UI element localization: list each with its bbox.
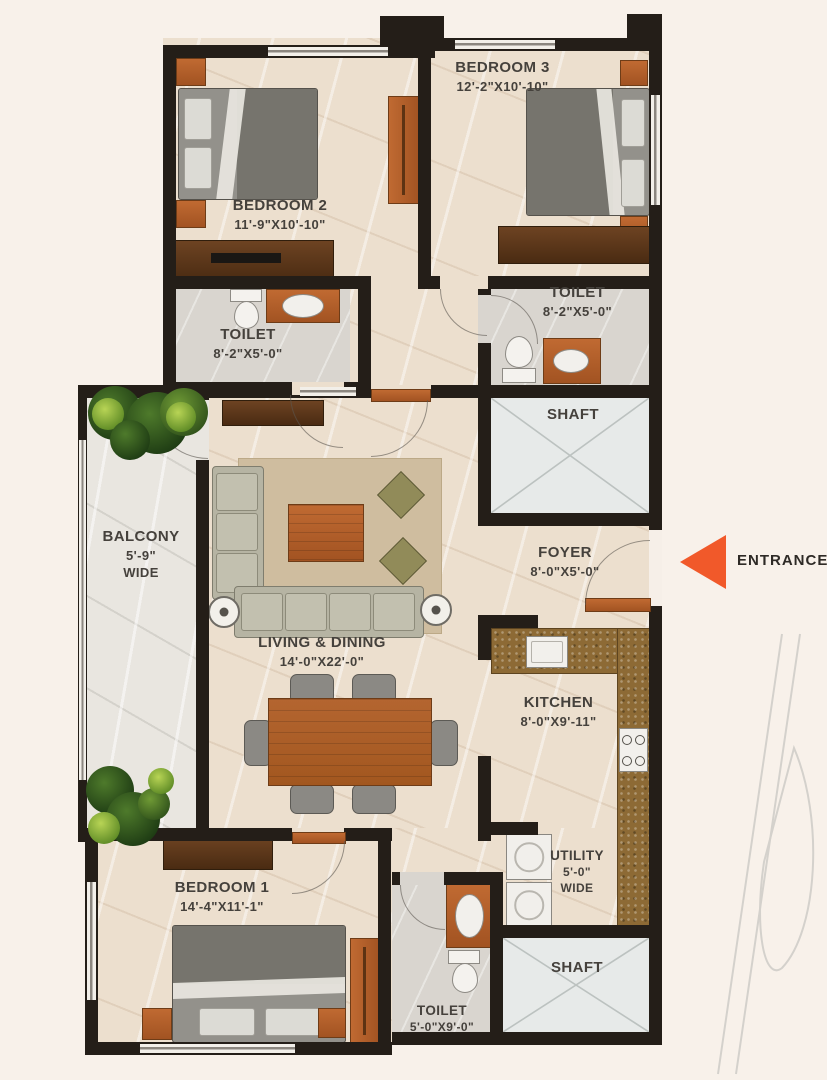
nightstand xyxy=(176,58,206,86)
entrance-opening xyxy=(649,530,662,606)
wall xyxy=(378,828,391,1045)
wall xyxy=(431,385,491,398)
bedroom3-label: BEDROOM 3 12'-2"X10'-10" xyxy=(415,58,590,95)
tv xyxy=(211,253,281,263)
wardrobe-handle xyxy=(363,947,366,1035)
plant xyxy=(110,420,150,460)
coffee-table xyxy=(288,504,364,562)
bed-blanket xyxy=(173,926,345,984)
kitchen-sink xyxy=(526,636,568,668)
dresser-bedroom1 xyxy=(163,836,273,870)
bedroom2-label: BEDROOM 2 11'-9"X10'-10" xyxy=(190,196,370,233)
toilet2-label: TOILET 8'-2"X5'-0" xyxy=(173,325,323,362)
sofa-left xyxy=(212,466,264,600)
toilet3-washbasin xyxy=(553,349,589,373)
toilet1-washbasin xyxy=(455,894,484,938)
kitchen-label: KITCHEN 8'-0"X9'-11" xyxy=(496,693,621,730)
plant xyxy=(88,812,120,844)
sofa-cushion xyxy=(373,593,415,631)
sofa-cushion xyxy=(285,593,327,631)
door-opening xyxy=(440,276,488,289)
living-dining-label: LIVING & DINING 14'-0"X22'-0" xyxy=(227,633,417,670)
kitchen-hob xyxy=(619,728,648,772)
wall xyxy=(491,925,662,938)
toilet1-label: TOILET 5'-0"X9'-0" xyxy=(396,1002,488,1036)
balcony-label: BALCONY 5'-9" WIDE xyxy=(88,527,194,581)
dresser-bedroom3 xyxy=(498,226,650,264)
toilet3-label: TOILET 8'-2"X5'-0" xyxy=(505,283,650,320)
side-table-round xyxy=(208,596,240,628)
dining-chair xyxy=(290,784,334,814)
wardrobe-handle xyxy=(402,105,405,195)
floor-plan: BEDROOM 3 12'-2"X10'-10" BEDROOM 2 11'-9… xyxy=(0,0,827,1080)
dining-chair xyxy=(352,784,396,814)
toilet3-wc xyxy=(502,368,536,383)
wardrobe xyxy=(388,96,420,204)
window xyxy=(140,1044,295,1053)
window xyxy=(651,95,660,205)
kitchen-counter-right xyxy=(617,628,651,930)
adjacent-unit-outline xyxy=(690,628,827,1080)
nightstand xyxy=(142,1008,172,1040)
pillow xyxy=(621,159,645,207)
foyer-label: FOYER 8'-0"X5'-0" xyxy=(500,543,630,580)
wall xyxy=(358,276,371,395)
pillow xyxy=(265,1008,321,1036)
wall xyxy=(163,276,371,289)
wall-column xyxy=(627,14,662,40)
bedroom1-label: BEDROOM 1 14'-4"X11'-1" xyxy=(132,878,312,915)
balcony-floor xyxy=(87,398,196,828)
toilet1-wc-bowl xyxy=(452,963,478,993)
dining-table xyxy=(268,698,432,786)
nightstand xyxy=(318,1008,346,1038)
wardrobe-bedroom1 xyxy=(350,938,380,1044)
pillow xyxy=(621,99,645,147)
window xyxy=(455,40,555,49)
sofa-cushion xyxy=(329,593,371,631)
bed-bedroom3 xyxy=(526,88,650,216)
plant xyxy=(148,768,174,794)
pillow xyxy=(184,98,212,140)
wall xyxy=(478,615,491,660)
plant xyxy=(166,402,196,432)
balcony-railing-glass xyxy=(79,440,86,780)
bed-blanket xyxy=(237,89,317,199)
pillow xyxy=(199,1008,255,1036)
utility-label: UTILITY 5'-0" WIDE xyxy=(536,847,618,896)
toilet1-wc xyxy=(448,950,480,964)
shaft-bottom-label: SHAFT xyxy=(502,958,652,978)
side-table-round xyxy=(420,594,452,626)
entrance-label: ENTRANCE xyxy=(737,552,827,569)
window xyxy=(268,47,388,56)
shaft-bottom-cross-icon xyxy=(503,938,649,1032)
sofa-cushion xyxy=(216,473,258,511)
sofa-bottom xyxy=(234,586,424,638)
door-opening xyxy=(400,872,444,885)
dining-chair xyxy=(430,720,458,766)
pillow xyxy=(184,147,212,189)
entrance-arrow-icon xyxy=(680,535,726,589)
shaft-top-label: SHAFT xyxy=(498,405,648,425)
nightstand xyxy=(620,60,648,86)
wall xyxy=(478,822,538,835)
toilet2-washbasin xyxy=(282,294,324,318)
wall xyxy=(478,513,662,526)
wall xyxy=(478,385,662,398)
window xyxy=(87,882,96,1000)
wall-column xyxy=(380,16,444,46)
sofa-cushion xyxy=(216,513,258,551)
sofa-cushion xyxy=(241,593,283,631)
bed-bedroom2 xyxy=(178,88,318,200)
